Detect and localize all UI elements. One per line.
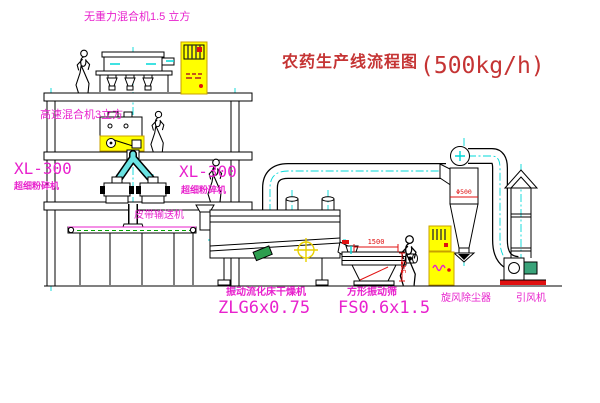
flow-diagram-page: 1500 545 Φ500 无重力混合机1.5 立方 农药生产线流程图(500k…: [0, 0, 600, 403]
label-mill-left-model: XL-300: [14, 161, 72, 177]
label-sieve-model: FS0.6x1.5: [338, 300, 430, 317]
gravity-free-mixer-drawing: [96, 52, 174, 92]
label-mill-left-name: 超细粉碎机: [14, 182, 72, 191]
mill-right-drawing: [136, 177, 170, 203]
label-dryer-name: 振动流化床干燥机: [226, 288, 310, 298]
diagram-title-capacity: (500kg/h): [420, 53, 545, 79]
worker-figure-2: [151, 111, 164, 152]
label-sieve: 方形振动筛 FS0.6x1.5: [338, 288, 430, 317]
label-cyclone: 旋风除尘器: [441, 294, 491, 304]
fluid-bed-dryer-drawing: [196, 197, 350, 285]
label-high-speed-mixer: 高速混合机3立方: [40, 110, 123, 121]
exhaust-duct: [270, 171, 446, 212]
label-fan: 引风机: [516, 294, 546, 304]
label-gravity-mixer: 无重力混合机1.5 立方: [84, 12, 190, 23]
diagram-title: 农药生产线流程图(500kg/h): [282, 48, 545, 79]
label-mill-left: XL-300 超细粉碎机: [14, 161, 72, 191]
control-cabinet-right-lower: [429, 252, 454, 285]
worker-figure-1: [76, 50, 90, 93]
dim-sieve-length: 1500: [368, 238, 385, 246]
label-belt-conveyor: 皮带输送机: [134, 211, 184, 221]
induced-draft-fan-drawing: [500, 258, 546, 285]
cyclone-dia-note: Φ500: [456, 188, 472, 196]
label-mill-right-model: XL-300: [179, 164, 237, 180]
dim-sieve-height: 545: [400, 261, 408, 274]
label-dryer-model: ZLG6x0.75: [218, 300, 310, 317]
control-cabinet-right-upper: [429, 226, 451, 251]
mill-left-drawing: [100, 177, 134, 203]
label-mill-right-name: 超细粉碎机: [181, 186, 237, 195]
label-sieve-name: 方形振动筛: [347, 288, 430, 298]
belt-conveyor-drawing: [68, 227, 196, 285]
label-mill-right: XL-300 超细粉碎机: [179, 164, 237, 195]
control-cabinet-top: [181, 42, 207, 94]
diagram-title-text: 农药生产线流程图: [282, 54, 418, 71]
label-dryer: 振动流化床干燥机 ZLG6x0.75: [218, 288, 310, 317]
